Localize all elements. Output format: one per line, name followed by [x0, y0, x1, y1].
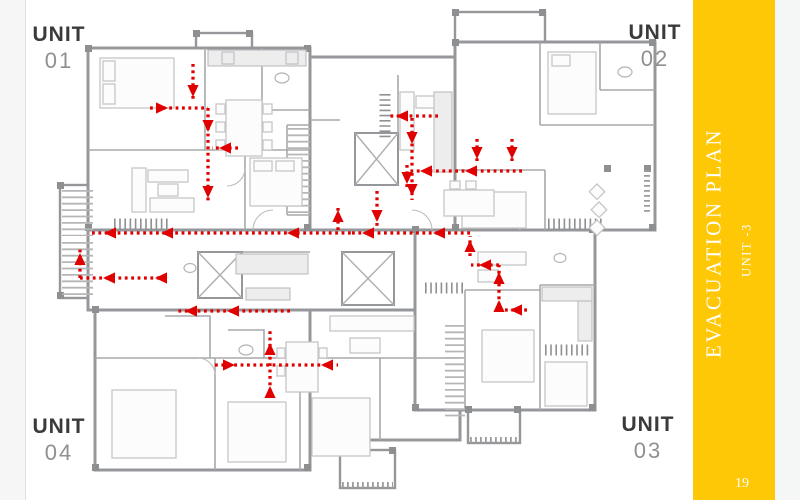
unit-01-number: 01: [30, 49, 88, 72]
unit-01-label: UNIT 01: [30, 24, 88, 72]
unit-04-label: UNIT 04: [30, 416, 88, 464]
unit-02-number: 02: [626, 47, 684, 70]
sidebar: EVACUATION PLAN UNIT -3 19: [693, 0, 775, 500]
unit-01-word: UNIT: [30, 24, 88, 46]
unit-03-word: UNIT: [618, 414, 678, 436]
unit-04-word: UNIT: [30, 416, 88, 438]
unit-04-number: 04: [30, 441, 88, 464]
unit-02-label: UNIT 02: [626, 22, 684, 70]
unit-03-number: 03: [618, 439, 678, 462]
floorplan-drawing: [0, 0, 800, 500]
sidebar-title: EVACUATION PLAN: [702, 128, 727, 358]
sidebar-subtitle: UNIT -3: [740, 223, 755, 277]
unit-03-label: UNIT 03: [618, 414, 678, 462]
unit-02-word: UNIT: [626, 22, 684, 44]
evacuation-plan-page: { "sidebar": { "title": "EVACUATION PLAN…: [0, 0, 800, 500]
page-number: 19: [735, 476, 749, 492]
